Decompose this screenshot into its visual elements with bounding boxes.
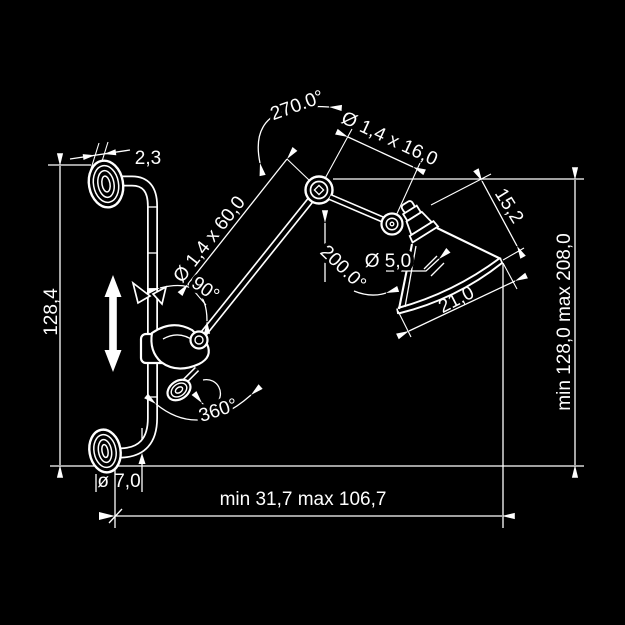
bottom-wall-flange bbox=[86, 427, 124, 475]
label-shade-diameter: 21,0 bbox=[435, 282, 477, 318]
label-flange-thickness: 2,3 bbox=[135, 148, 161, 169]
adjustment-knob bbox=[164, 369, 197, 405]
label-base-rotation: 360° bbox=[196, 395, 240, 427]
shade-rotation-arrow-right bbox=[354, 291, 386, 295]
label-elbow-rotation: 270.0° bbox=[268, 87, 327, 126]
lamp-technical-drawing-page: 2,3 128,4 270.0° Ø 1,4 x 16,0 Ø 1,4 x 60… bbox=[0, 0, 625, 625]
label-shade-rotation: 200.0° bbox=[316, 241, 370, 294]
label-tube-diameter: ø 7,0 bbox=[97, 471, 140, 492]
label-right-height: min 128,0 max 208,0 bbox=[554, 233, 575, 410]
label-socket-diameter: Ø 5,0 bbox=[365, 251, 411, 272]
arm-hub bbox=[191, 332, 208, 349]
lamp-technical-drawing: 2,3 128,4 270.0° Ø 1,4 x 16,0 Ø 1,4 x 60… bbox=[0, 0, 625, 625]
label-left-height: 128,4 bbox=[41, 288, 62, 336]
wrist-joint bbox=[382, 214, 403, 235]
label-horizontal-reach: min 31,7 max 106,7 bbox=[220, 489, 387, 510]
slide-direction-arrow bbox=[105, 275, 122, 372]
label-upper-arm-tube: Ø 1,4 x 60,0 bbox=[170, 192, 250, 287]
mounting-tube bbox=[112, 181, 158, 453]
elbow-joint bbox=[306, 177, 333, 204]
